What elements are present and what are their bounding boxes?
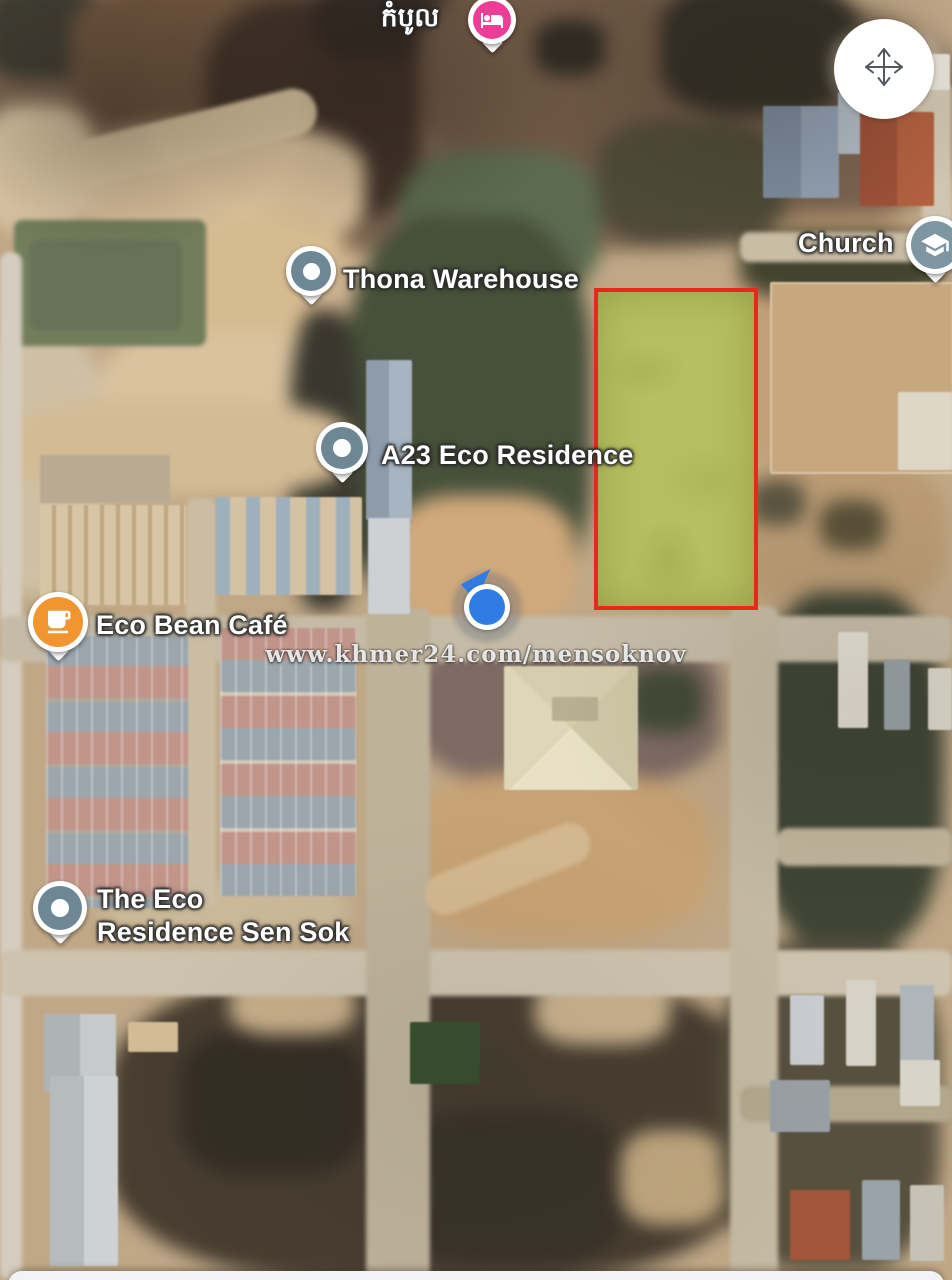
pin-the-eco-residence[interactable]: [33, 881, 87, 941]
watermark: www.khmer24.com/mensoknov: [0, 641, 952, 668]
label-line-1: The Eco: [97, 883, 350, 916]
location-dot[interactable]: [469, 589, 505, 625]
poi-dot-icon: [51, 899, 69, 917]
bottom-sheet-edge[interactable]: [8, 1271, 944, 1280]
pin-a23-eco-residence[interactable]: [316, 422, 368, 480]
move-arrows-icon: [860, 43, 908, 96]
label-a23-eco-residence: A23 Eco Residence: [381, 439, 634, 472]
pin-thona-warehouse[interactable]: [286, 246, 336, 302]
poi-dot-icon: [333, 439, 351, 457]
pin-church[interactable]: [906, 216, 952, 280]
graduation-cap-icon: [920, 230, 950, 260]
label-the-eco-residence: The Eco Residence Sen Sok: [97, 883, 350, 949]
label-kambol: កំបូល: [381, 1, 439, 34]
pin-kambol-lodging[interactable]: [468, 0, 516, 50]
label-eco-bean-cafe: Eco Bean Café: [96, 609, 288, 642]
label-line-2: Residence Sen Sok: [97, 916, 350, 949]
pan-move-button[interactable]: [834, 19, 934, 119]
label-church: Church: [798, 227, 894, 260]
satellite-map-view[interactable]: www.khmer24.com/mensoknov កំបូល Thona Wa…: [0, 0, 952, 1280]
pin-eco-bean-cafe[interactable]: [28, 592, 88, 658]
poi-dot-icon: [303, 263, 320, 280]
coffee-cup-icon: [43, 607, 73, 637]
bed-lodging-icon: [480, 8, 504, 32]
label-thona-warehouse: Thona Warehouse: [343, 263, 579, 296]
